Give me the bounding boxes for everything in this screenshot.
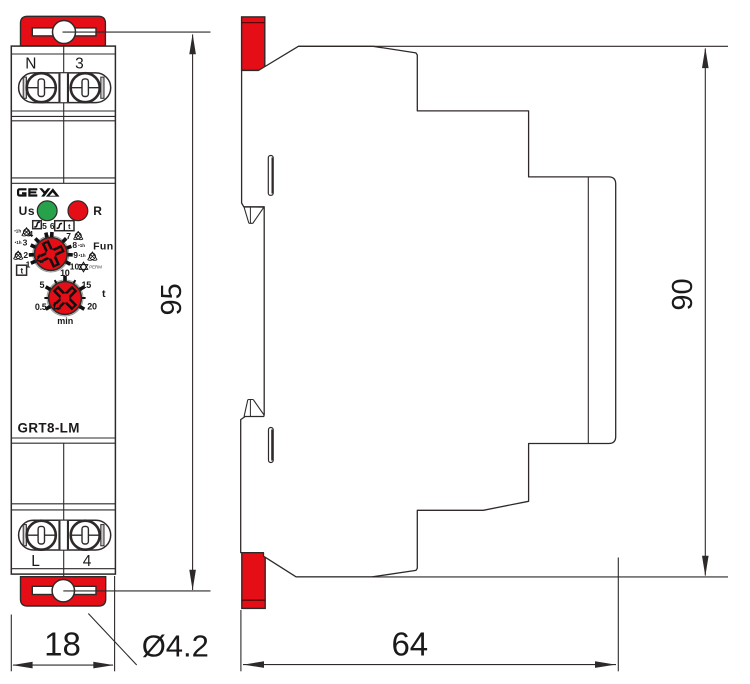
svg-text:4: 4 — [83, 553, 92, 570]
svg-text:18: 18 — [44, 625, 81, 662]
svg-text:L: L — [31, 553, 40, 570]
svg-text:Fun: Fun — [93, 241, 113, 253]
svg-text:3: 3 — [23, 237, 28, 247]
svg-text:•1h: •1h — [78, 243, 85, 248]
svg-text:3: 3 — [75, 55, 84, 72]
svg-text:R: R — [93, 204, 102, 218]
svg-text:6: 6 — [50, 221, 55, 231]
svg-text:•1h: •1h — [14, 229, 21, 234]
svg-text:9: 9 — [73, 250, 78, 260]
svg-text:64: 64 — [391, 626, 428, 663]
svg-text:Ø4.2: Ø4.2 — [142, 629, 209, 664]
svg-text:90: 90 — [667, 278, 699, 310]
svg-text:0.5: 0.5 — [35, 302, 47, 312]
svg-text:N: N — [25, 55, 36, 72]
svg-text:5: 5 — [40, 280, 45, 290]
svg-text:15: 15 — [81, 280, 91, 290]
svg-text:min: min — [57, 316, 73, 326]
svg-text:•1h: •1h — [15, 240, 22, 245]
svg-text:5: 5 — [42, 221, 47, 231]
svg-text:2: 2 — [23, 250, 28, 260]
svg-text:•1h: •1h — [79, 253, 86, 258]
svg-text:t: t — [102, 288, 106, 300]
svg-text:PERM: PERM — [89, 265, 102, 270]
svg-text:Us: Us — [19, 204, 36, 218]
svg-text:10: 10 — [70, 261, 80, 271]
svg-text:20: 20 — [87, 301, 97, 311]
svg-text:GRT8-LM: GRT8-LM — [18, 421, 80, 436]
svg-text:7: 7 — [66, 231, 71, 241]
svg-text:95: 95 — [156, 283, 188, 315]
svg-text:t: t — [20, 266, 23, 275]
svg-text:8: 8 — [72, 240, 77, 250]
svg-text:10: 10 — [60, 268, 70, 278]
